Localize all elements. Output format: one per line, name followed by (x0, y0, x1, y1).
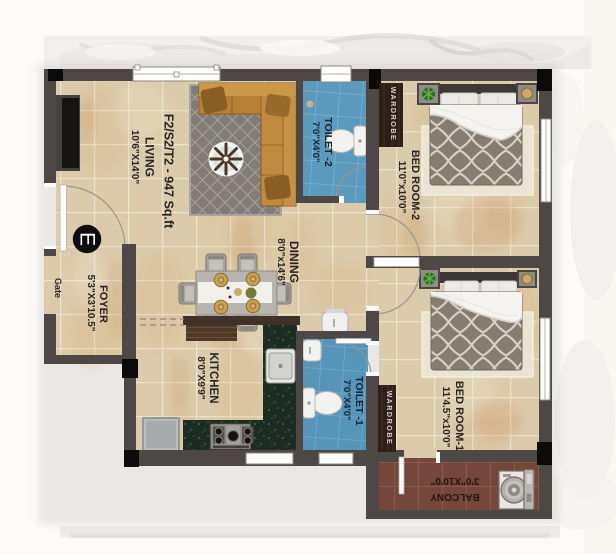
svg-text:Gate: Gate (53, 278, 63, 298)
svg-text:TOILET -2: TOILET -2 (322, 117, 334, 167)
svg-text:TOILET -1: TOILET -1 (353, 376, 365, 426)
svg-text:FOYER: FOYER (97, 285, 109, 323)
svg-text:WARDROBE: WARDROBE (389, 87, 398, 142)
svg-text:10'6"X14'0": 10'6"X14'0" (129, 130, 140, 185)
svg-text:KITCHEN: KITCHEN (207, 352, 219, 403)
svg-text:LIVING: LIVING (143, 137, 157, 177)
svg-text:7'0"X4'0": 7'0"X4'0" (310, 122, 321, 163)
svg-text:WARDROBE: WARDROBE (385, 391, 394, 446)
svg-text:3'0"X10'0": 3'0"X10'0" (430, 475, 479, 486)
svg-text:11'4.5"x10'0": 11'4.5"x10'0" (440, 387, 451, 448)
svg-text:DINING: DINING (287, 241, 301, 283)
svg-text:E: E (76, 232, 99, 246)
svg-text:BED ROOM-2: BED ROOM-2 (409, 150, 421, 220)
svg-text:8'0"x14'6": 8'0"x14'6" (275, 238, 286, 286)
svg-text:BED ROOM-1: BED ROOM-1 (453, 381, 465, 451)
svg-text:8'0"X9'9": 8'0"X9'9" (195, 356, 206, 399)
svg-text:11'0"x10'0": 11'0"x10'0" (396, 161, 407, 214)
svg-text:F2/S2/T2 - 947 Sq.ft: F2/S2/T2 - 947 Sq.ft (162, 114, 176, 229)
svg-text:5'3"X3'10.5": 5'3"X3'10.5" (85, 274, 96, 331)
svg-text:BALCONY: BALCONY (430, 491, 480, 502)
svg-text:7'0"X4'0": 7'0"X4'0" (341, 380, 352, 421)
